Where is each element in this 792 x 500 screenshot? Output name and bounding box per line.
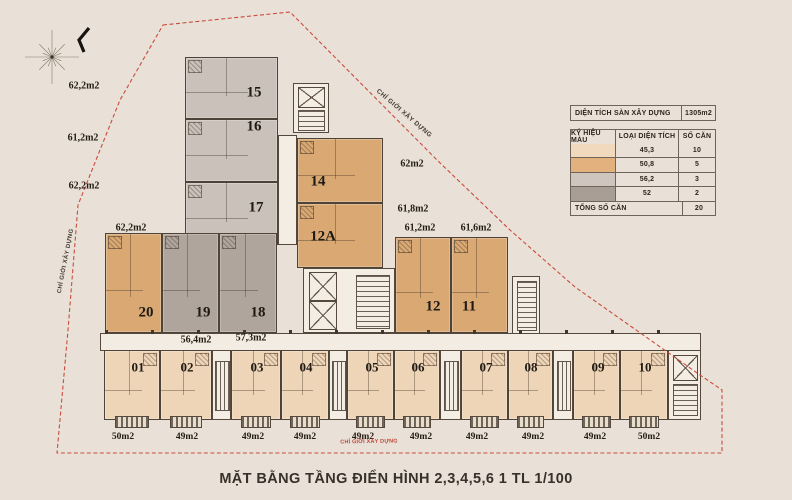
legend-col-count: SỐ CĂN xyxy=(679,130,715,144)
stairs-icon xyxy=(356,275,390,329)
legend-color-swatch xyxy=(571,158,616,172)
balcony xyxy=(170,416,202,428)
unit-area-label: 49m2 xyxy=(584,432,606,442)
bathroom-hatch xyxy=(264,353,278,366)
stairs-icon xyxy=(332,361,346,411)
unit-area-label: 49m2 xyxy=(176,432,198,442)
unit-number: 20 xyxy=(139,306,154,321)
unit-number: 18 xyxy=(251,306,266,321)
legend-area-value: 1305m2 xyxy=(682,106,715,120)
unit-08: 08 xyxy=(508,350,553,420)
legend-column-headers: KÝ HIỆU MÀU LOẠI DIỆN TÍCH SỐ CĂN xyxy=(571,130,715,144)
top-stair-core xyxy=(293,83,329,133)
stairwell xyxy=(440,350,461,420)
unit-18: 18 xyxy=(219,233,277,333)
unit-number: 15 xyxy=(247,86,262,101)
legend-gap xyxy=(570,121,716,129)
unit-07: 07 xyxy=(461,350,508,420)
stairs-icon xyxy=(557,361,571,411)
unit-area-label: 50m2 xyxy=(112,432,134,442)
unit-number: 14 xyxy=(311,175,326,190)
legend-color-swatch xyxy=(571,144,616,158)
bathroom-hatch xyxy=(312,353,326,366)
page-title: MẶT BẰNG TẦNG ĐIỂN HÌNH 2,3,4,5,6 1 TL 1… xyxy=(0,471,792,487)
legend-total-label: TỔNG SỐ CĂN xyxy=(571,202,683,216)
legend-color-swatch xyxy=(571,187,616,201)
bathroom-hatch xyxy=(108,236,122,249)
legend-rows: 45,31050,8556,23522 xyxy=(571,144,715,201)
end-stair-core xyxy=(668,350,701,420)
floorplan-canvas: 0150m20249m20349m20449m20549m20649m20749… xyxy=(0,0,792,500)
unit-number: 12A xyxy=(310,230,336,245)
stairwell xyxy=(212,350,231,420)
unit-number: 16 xyxy=(247,120,262,135)
legend-col-color: KÝ HIỆU MÀU xyxy=(571,130,616,144)
legend-body: KÝ HIỆU MÀU LOẠI DIỆN TÍCH SỐ CĂN 45,310… xyxy=(570,129,716,216)
unit-06: 06 xyxy=(394,350,440,420)
unit-area-label: 62,2m2 xyxy=(116,223,147,234)
balcony xyxy=(629,416,658,428)
unit-12A: 12A xyxy=(297,203,383,268)
stairs-icon xyxy=(215,361,230,411)
stairwell xyxy=(329,350,347,420)
legend-total-row: TỔNG SỐ CĂN 20 xyxy=(571,201,715,216)
legend-unit-count: 2 xyxy=(679,187,715,201)
bathroom-hatch xyxy=(222,236,236,249)
balcony xyxy=(115,416,150,428)
unit-14: 14 xyxy=(297,138,383,203)
unit-area-label: 61,2m2 xyxy=(68,133,99,144)
unit-number: 11 xyxy=(462,300,476,315)
bathroom-hatch xyxy=(454,240,468,253)
bathroom-hatch xyxy=(188,60,202,73)
bathroom-hatch xyxy=(300,141,314,154)
unit-number: 03 xyxy=(251,361,264,374)
balcony xyxy=(290,416,319,428)
unit-10: 10 xyxy=(620,350,668,420)
bathroom-hatch xyxy=(300,206,314,219)
boundary-label-bottom: CHỈ GIỚI XÂY DỰNG xyxy=(340,438,398,445)
unit-15: 15 xyxy=(185,57,278,119)
boundary-label-left: CHỈ GIỚI XÂY DỰNG xyxy=(55,219,77,303)
elevator-icon xyxy=(298,87,325,108)
central-elevator-core xyxy=(303,268,395,333)
unit-area-label: 49m2 xyxy=(242,432,264,442)
bathroom-hatch xyxy=(188,122,202,135)
bathroom-hatch xyxy=(398,240,412,253)
compass-rose-icon xyxy=(25,28,89,84)
legend-unit-count: 3 xyxy=(679,173,715,187)
legend-unit-count: 5 xyxy=(679,158,715,172)
unit-number: 12 xyxy=(426,300,441,315)
bathroom-hatch xyxy=(603,353,617,366)
unit-19: 19 xyxy=(162,233,219,333)
elevator-icon xyxy=(673,355,698,381)
unit-03: 03 xyxy=(231,350,281,420)
unit-area-label: 61,6m2 xyxy=(461,223,492,234)
unit-area-label: 49m2 xyxy=(294,432,316,442)
unit-area-label: 56,4m2 xyxy=(181,335,212,346)
unit-area-label: 62m2 xyxy=(400,159,423,170)
bathroom-hatch xyxy=(651,353,665,366)
stairs-icon xyxy=(298,110,325,131)
bathroom-hatch xyxy=(536,353,550,366)
legend-col-area: LOẠI DIỆN TÍCH xyxy=(616,130,679,144)
legend-area-type: 45,3 xyxy=(616,144,679,158)
legend-total-value: 20 xyxy=(683,202,715,216)
bathroom-hatch xyxy=(143,353,157,366)
legend-row: 522 xyxy=(571,186,715,201)
bathroom-hatch xyxy=(423,353,437,366)
unit-number: 02 xyxy=(181,361,194,374)
bathroom-hatch xyxy=(188,185,202,198)
balcony xyxy=(470,416,499,428)
legend-header-row: DIỆN TÍCH SÀN XÂY DỰNG 1305m2 xyxy=(570,105,716,121)
boundary-label-top: CHỈ GIỚI XÂY DỰNG xyxy=(370,84,438,144)
north-arrow-icon xyxy=(79,28,89,52)
elevator-icon xyxy=(309,301,337,330)
balcony xyxy=(241,416,272,428)
unit-20: 20 xyxy=(105,233,162,333)
bathroom-hatch xyxy=(491,353,505,366)
bathroom-hatch xyxy=(165,236,179,249)
unit-area-label: 62,2m2 xyxy=(69,81,100,92)
unit-16: 16 xyxy=(185,119,278,182)
legend-area-type: 52 xyxy=(616,187,679,201)
unit-number: 19 xyxy=(196,306,211,321)
unit-number: 17 xyxy=(249,201,264,216)
unit-12: 12 xyxy=(395,237,451,333)
legend-area-type: 56,2 xyxy=(616,173,679,187)
unit-01: 01 xyxy=(104,350,160,420)
unit-area-label: 61,2m2 xyxy=(405,223,436,234)
legend-row: 50,85 xyxy=(571,157,715,172)
legend-row: 45,310 xyxy=(571,144,715,158)
unit-area-label: 49m2 xyxy=(410,432,432,442)
unit-02: 02 xyxy=(160,350,212,420)
unit-11: 11 xyxy=(451,237,508,333)
legend-color-swatch xyxy=(571,173,616,187)
stairs-icon xyxy=(517,281,537,331)
unit-area-label: 61,8m2 xyxy=(398,204,429,215)
balcony xyxy=(403,416,431,428)
connector-corridor xyxy=(278,135,297,245)
balcony xyxy=(582,416,611,428)
unit-area-label: 49m2 xyxy=(522,432,544,442)
bathroom-hatch xyxy=(377,353,391,366)
legend-area-label: DIỆN TÍCH SÀN XÂY DỰNG xyxy=(571,106,682,120)
elevator-icon xyxy=(309,272,337,301)
unit-area-label: 49m2 xyxy=(466,432,488,442)
unit-number: 04 xyxy=(300,361,313,374)
unit-area-label: 62,2m2 xyxy=(69,181,100,192)
unit-05: 05 xyxy=(347,350,394,420)
balcony xyxy=(356,416,385,428)
unit-09: 09 xyxy=(573,350,620,420)
legend-unit-count: 10 xyxy=(679,144,715,158)
stairs-icon xyxy=(673,384,698,416)
right-stair-core xyxy=(512,276,540,334)
legend-area-type: 50,8 xyxy=(616,158,679,172)
unit-area-label: 57,3m2 xyxy=(236,333,267,344)
legend: DIỆN TÍCH SÀN XÂY DỰNG 1305m2 KÝ HIỆU MÀ… xyxy=(570,105,716,216)
stairwell xyxy=(553,350,573,420)
unit-area-label: 50m2 xyxy=(638,432,660,442)
unit-number: 10 xyxy=(639,361,652,374)
bathroom-hatch xyxy=(195,353,209,366)
unit-04: 04 xyxy=(281,350,329,420)
balcony xyxy=(517,416,545,428)
legend-row: 56,23 xyxy=(571,172,715,187)
stairs-icon xyxy=(444,361,459,411)
